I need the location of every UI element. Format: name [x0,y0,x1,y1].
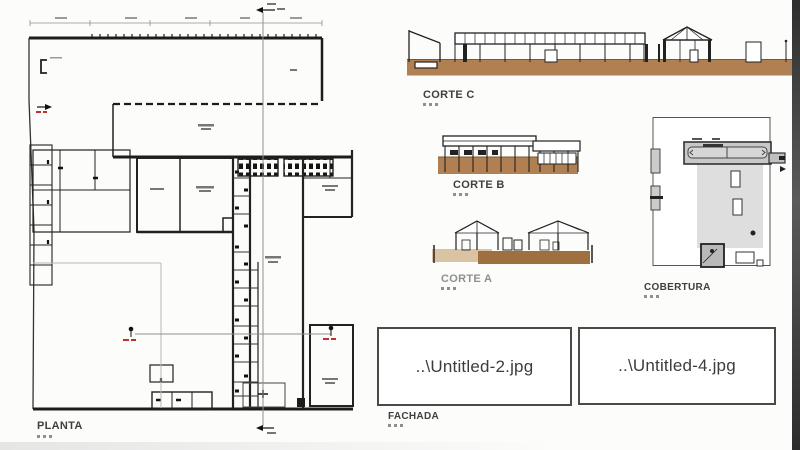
corte-c-drawing [407,27,792,76]
planta-drawing [29,3,353,434]
scan-edge-strip [792,0,800,450]
corte-a-scale-marks [441,287,457,290]
corte-b-label: CORTE B [453,180,505,191]
cobertura-drawing [650,118,786,268]
image-placeholder-filename: ..\Untitled-4.jpg [618,356,736,376]
corte-c-scale-marks [423,103,439,106]
fachada-label: FACHADA [388,412,439,422]
corte-b-scale-marks [453,193,469,196]
planta-label: PLANTA [37,421,83,432]
corte-b-drawing [438,136,580,174]
corte-c-label: CORTE C [423,90,475,101]
fachada-scale-marks [388,424,404,427]
corte-a-label: CORTE A [441,274,492,285]
planta-scale-marks [37,435,53,438]
cobertura-label: COBERTURA [644,283,711,293]
drawing-sheet: PLANTA CORTE C CORTE B CORTE A COBERTURA… [0,0,800,450]
corte-a-drawing [432,221,592,264]
image-placeholder-untitled-2: ..\Untitled-2.jpg [377,327,572,406]
cobertura-scale-marks [644,295,660,298]
section-markers [36,3,336,434]
scan-smudge [0,442,560,450]
image-placeholder-filename: ..\Untitled-2.jpg [416,357,534,377]
image-placeholder-untitled-4: ..\Untitled-4.jpg [578,327,776,405]
